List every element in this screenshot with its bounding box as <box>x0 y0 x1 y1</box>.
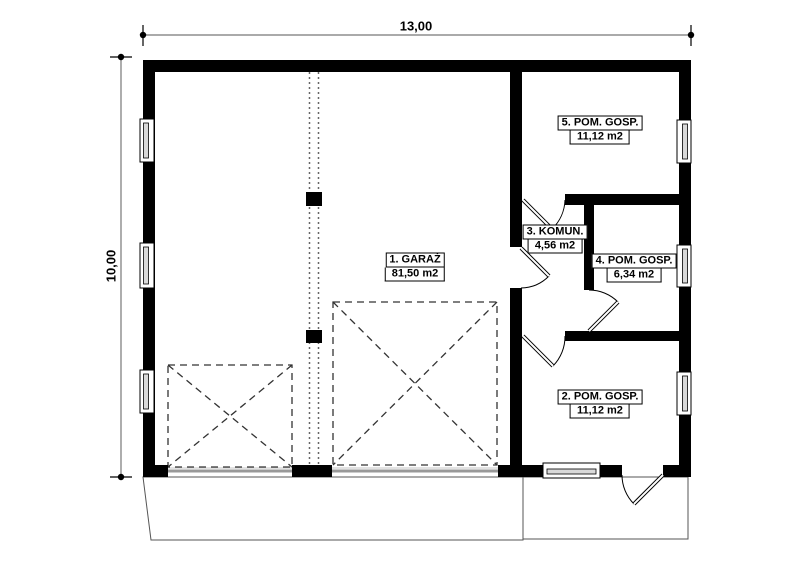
window-right-2 <box>677 245 691 287</box>
door-swing-arc <box>589 290 618 302</box>
dimension-end-dot <box>140 32 146 38</box>
door-room2 <box>523 336 565 366</box>
window-left-1 <box>140 119 154 162</box>
wall-bottom-segment <box>498 465 545 477</box>
door-garage <box>521 248 549 288</box>
door-leaf-inner <box>523 336 553 366</box>
wall-room5-bottom <box>565 194 679 205</box>
driveway-apron <box>143 477 688 540</box>
room-name: 1. GARAŻ <box>385 253 444 268</box>
column-axis <box>306 72 322 465</box>
floor-plan-drawing <box>0 0 800 566</box>
dimension-end-dot <box>118 54 124 60</box>
dimension-width-label: 13,00 <box>400 19 433 34</box>
room-area: 11,12 m2 <box>570 405 630 419</box>
room-label-pom-gosp-4: 4. POM. GOSP. 6,34 m2 <box>592 254 677 283</box>
room-label-pom-gosp-2: 2. POM. GOSP. 11,12 m2 <box>558 390 643 419</box>
room-area: 4,56 m2 <box>528 240 582 254</box>
garage-apron-outline <box>143 477 523 540</box>
window-right-3 <box>677 372 691 415</box>
room-name: 4. POM. GOSP. <box>592 254 677 269</box>
dimension-end-dot <box>118 474 124 480</box>
garage-door-lines <box>168 468 498 471</box>
wall-bottom-segment <box>143 465 168 477</box>
window-right-1 <box>677 120 691 163</box>
room-label-komun: 3. KOMUN. 4,56 m2 <box>523 225 588 254</box>
wall-bottom-segment <box>292 465 332 477</box>
window-left-2 <box>140 243 154 288</box>
wall-garage-divider-upper <box>510 72 522 247</box>
dimension-height-label: 10,00 <box>104 250 119 283</box>
floor-plan: 13,00 10,00 1. GARAŻ 81,50 m2 5. POM. GO… <box>0 0 800 566</box>
wall-garage-divider-lower <box>510 288 522 465</box>
wall-bottom-segment <box>663 465 691 477</box>
room-name: 2. POM. GOSP. <box>558 390 643 405</box>
room-label-pom-gosp-5: 5. POM. GOSP. 11,12 m2 <box>558 116 643 145</box>
door-swing-arc <box>521 276 549 288</box>
room-label-garage: 1. GARAŻ 81,50 m2 <box>385 253 445 282</box>
dimension-end-dot <box>688 32 694 38</box>
window-left-3 <box>140 370 154 413</box>
door-exterior <box>622 475 663 504</box>
door-swing-arc <box>622 475 634 504</box>
door-room4 <box>589 290 618 331</box>
room-name: 3. KOMUN. <box>523 225 588 240</box>
room-name: 5. POM. GOSP. <box>558 116 643 131</box>
door-leaf-inner <box>634 475 663 504</box>
room-area: 6,34 m2 <box>607 269 661 283</box>
window-bottom <box>543 463 600 478</box>
wall-bottom-segment <box>600 465 622 477</box>
wall-room2-top <box>565 331 679 341</box>
structural-post <box>306 330 322 343</box>
room-area: 11,12 m2 <box>570 131 630 145</box>
structural-post <box>306 192 322 206</box>
parking-space-large <box>333 302 497 465</box>
windows <box>140 119 691 478</box>
entry-apron-outline <box>523 477 688 539</box>
wall-top <box>143 60 691 72</box>
parking-space-small <box>168 365 292 467</box>
door-swing-arc <box>553 336 565 366</box>
door-leaf-inner <box>589 302 618 331</box>
room-area: 81,50 m2 <box>385 268 445 282</box>
